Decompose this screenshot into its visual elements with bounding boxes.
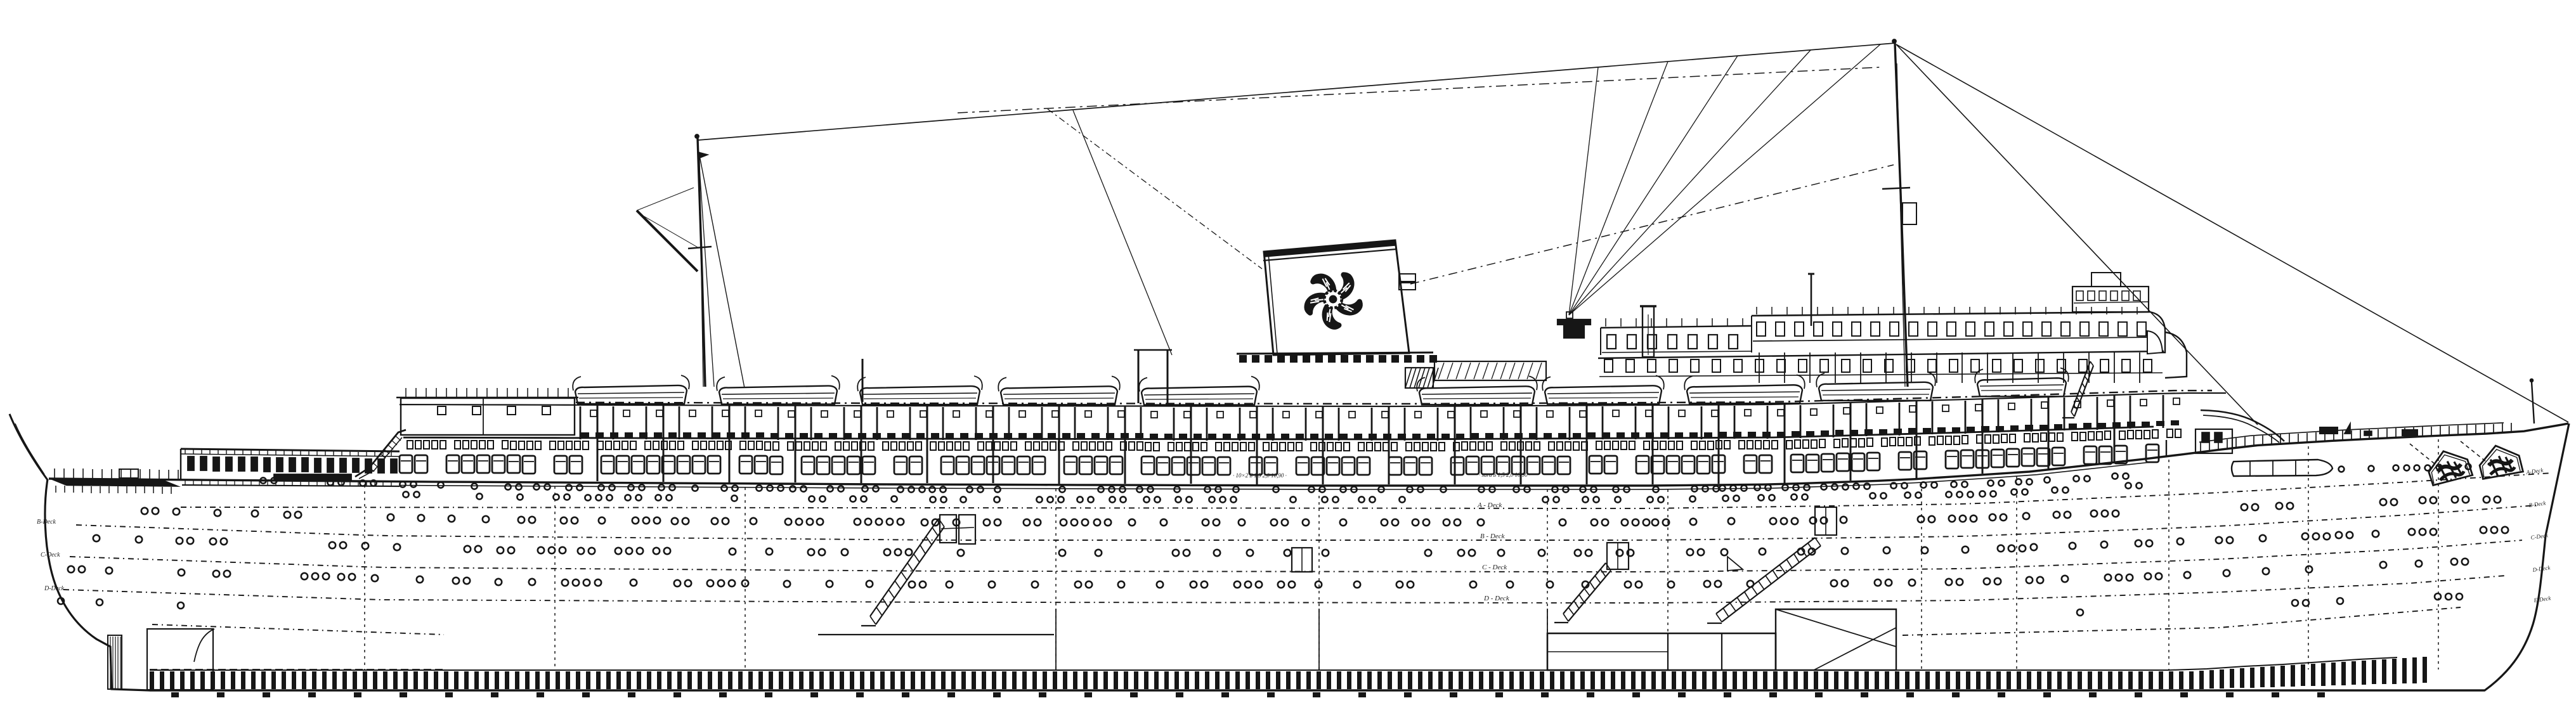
svg-text:B-Deck: B-Deck bbox=[37, 519, 56, 526]
svg-text:D - Deck: D - Deck bbox=[1483, 595, 1510, 602]
svg-text:· 10×2 ß 1,5 2,0 10,90 ·: · 10×2 ß 1,5 2,0 10,90 · bbox=[1233, 472, 1287, 479]
svg-text:C - Deck: C - Deck bbox=[1482, 564, 1507, 571]
svg-text:B - Deck: B - Deck bbox=[1480, 533, 1506, 540]
svg-text:A - Deck: A - Deck bbox=[1477, 501, 1502, 509]
svg-text:C-Deck: C-Deck bbox=[41, 552, 60, 559]
svg-text:D-Deck: D-Deck bbox=[44, 585, 65, 592]
svg-text:· sara ß 1,5 2,0 10,90 ·: · sara ß 1,5 2,0 10,90 · bbox=[1479, 472, 1530, 478]
